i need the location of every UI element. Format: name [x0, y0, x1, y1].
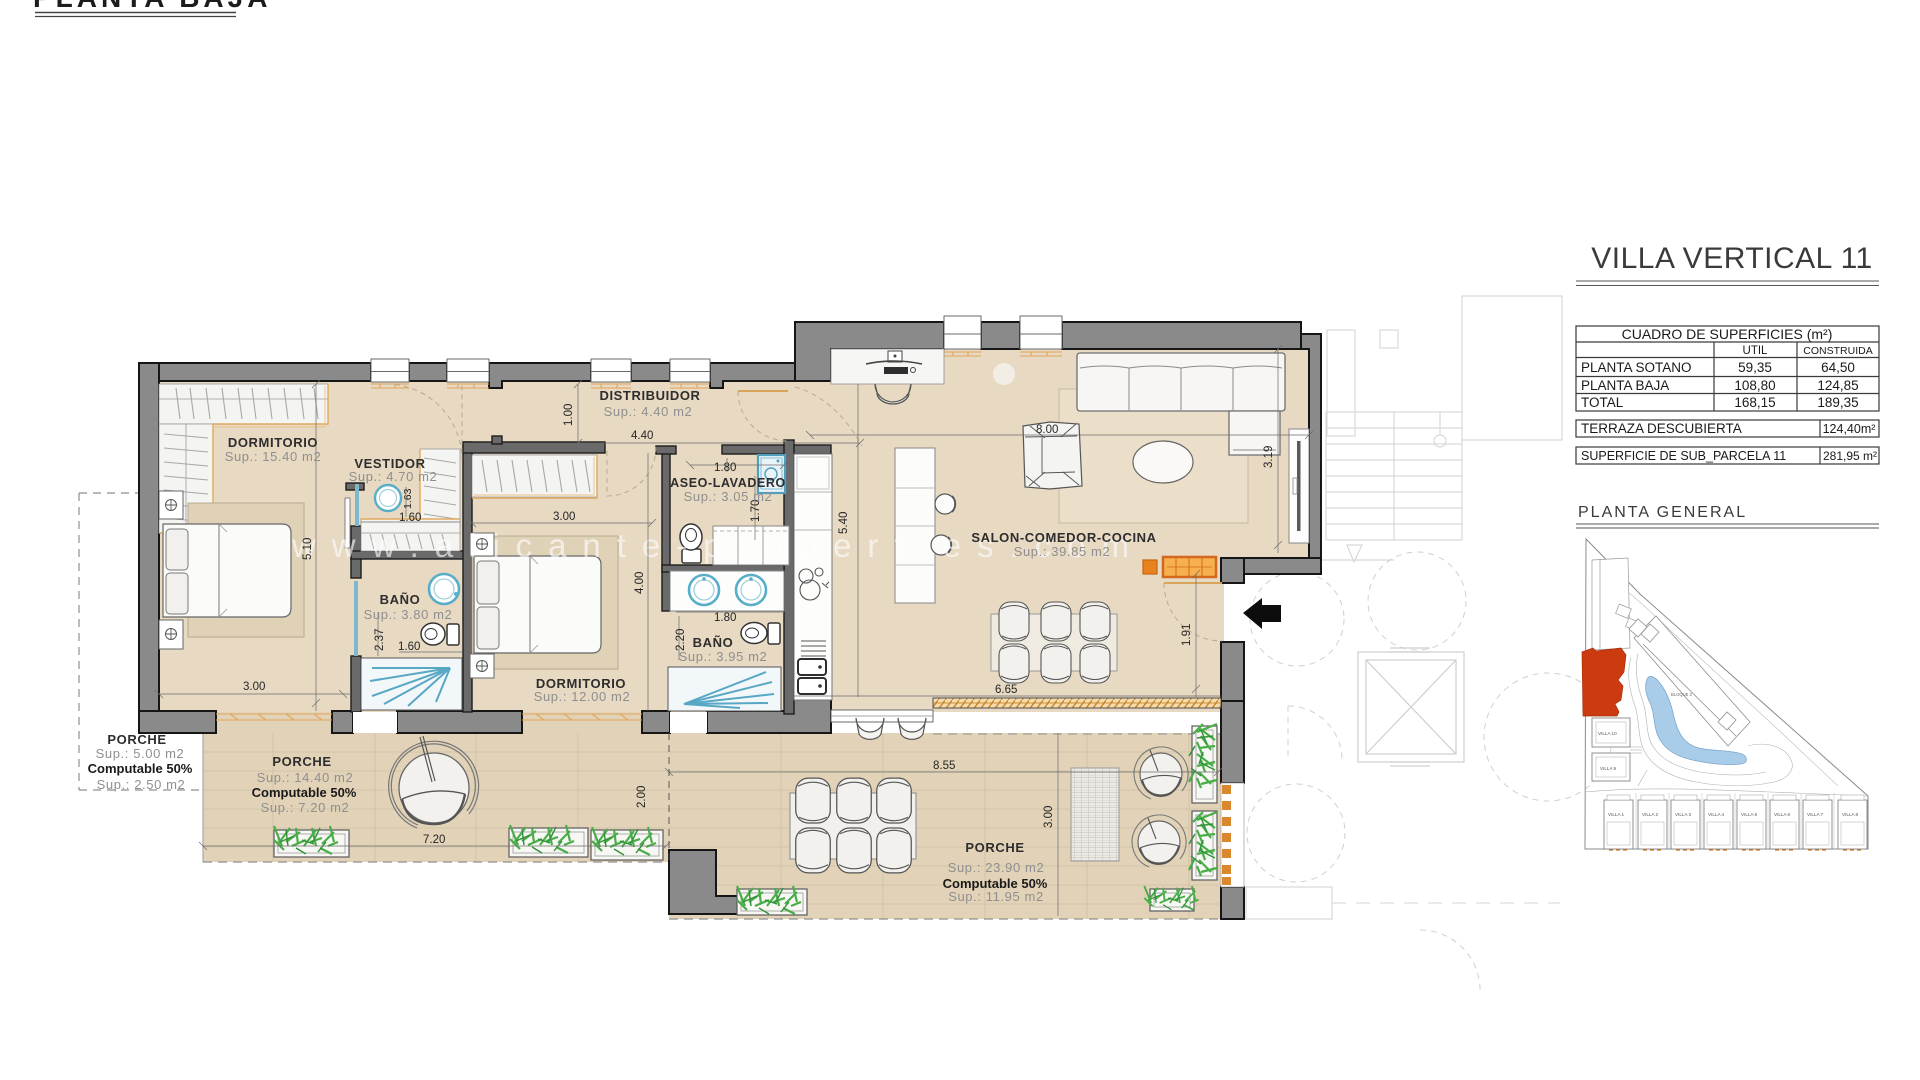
svg-text:VILLA 7: VILLA 7	[1807, 812, 1824, 817]
svg-text:108,80: 108,80	[1734, 378, 1775, 393]
svg-text:1.60: 1.60	[399, 512, 421, 524]
svg-text:PLANTA BAJA: PLANTA BAJA	[33, 0, 271, 13]
svg-text:1.63: 1.63	[402, 488, 414, 509]
svg-text:PLANTA BAJA: PLANTA BAJA	[1581, 378, 1669, 393]
svg-text:Sup.: 23.90 m2: Sup.: 23.90 m2	[948, 860, 1045, 875]
svg-text:CUADRO DE SUPERFICIES (m²): CUADRO DE SUPERFICIES (m²)	[1622, 326, 1833, 342]
svg-text:DISTRIBUIDOR: DISTRIBUIDOR	[599, 388, 700, 403]
svg-text:PORCHE: PORCHE	[107, 732, 166, 747]
svg-text:BAÑO: BAÑO	[380, 592, 421, 607]
svg-text:189,35: 189,35	[1817, 395, 1858, 410]
svg-text:2.00: 2.00	[636, 786, 648, 808]
svg-text:64,50: 64,50	[1821, 360, 1855, 375]
svg-text:TERRAZA DESCUBIERTA: TERRAZA DESCUBIERTA	[1581, 421, 1742, 436]
svg-text:8.55: 8.55	[933, 760, 955, 772]
svg-text:PLANTA SOTANO: PLANTA SOTANO	[1581, 360, 1692, 375]
svg-text:124,85: 124,85	[1817, 378, 1858, 393]
svg-text:VILLA 6: VILLA 6	[1774, 812, 1791, 817]
svg-text:SALON-COMEDOR-COCINA: SALON-COMEDOR-COCINA	[971, 530, 1156, 545]
svg-text:VILLA 3: VILLA 3	[1675, 812, 1692, 817]
svg-text:2.37: 2.37	[374, 629, 386, 651]
svg-text:VILLA VERTICAL 11: VILLA VERTICAL 11	[1591, 242, 1872, 275]
svg-text:VILLA 1: VILLA 1	[1608, 812, 1625, 817]
svg-text:VILLA 4: VILLA 4	[1708, 812, 1725, 817]
svg-text:BLOQUE 2: BLOQUE 2	[1671, 692, 1693, 697]
svg-text:Sup.: 3.80 m2: Sup.: 3.80 m2	[364, 607, 453, 622]
svg-text:1.80: 1.80	[714, 462, 736, 474]
svg-text:3.19: 3.19	[1263, 446, 1275, 468]
svg-text:Computable 50%: Computable 50%	[88, 761, 193, 776]
svg-text:VILLA 2: VILLA 2	[1642, 812, 1659, 817]
svg-text:3.00: 3.00	[243, 681, 265, 693]
svg-text:UTIL: UTIL	[1743, 345, 1769, 357]
svg-text:Sup.: 4.70 m2: Sup.: 4.70 m2	[349, 469, 438, 484]
svg-text:DORMITORIO: DORMITORIO	[228, 435, 318, 450]
svg-text:PLANTA GENERAL: PLANTA GENERAL	[1578, 504, 1747, 521]
svg-text:Sup.: 11.95 m2: Sup.: 11.95 m2	[948, 889, 1044, 904]
svg-text:BAÑO: BAÑO	[693, 635, 734, 650]
svg-text:PORCHE: PORCHE	[272, 754, 331, 769]
svg-text:Sup.: 12.00 m2: Sup.: 12.00 m2	[534, 689, 631, 704]
svg-text:VILLA 8: VILLA 8	[1842, 812, 1859, 817]
svg-text:Sup.: 15.40 m2: Sup.: 15.40 m2	[225, 449, 322, 464]
svg-text:168,15: 168,15	[1734, 395, 1775, 410]
svg-text:TOTAL: TOTAL	[1581, 395, 1624, 410]
svg-text:Sup.: 3.05 m2: Sup.: 3.05 m2	[684, 489, 773, 504]
svg-text:4.40: 4.40	[631, 430, 653, 442]
svg-text:Sup.: 4.40 m2: Sup.: 4.40 m2	[604, 404, 693, 419]
svg-text:6.65: 6.65	[995, 684, 1017, 696]
svg-text:Sup.: 39.85 m2: Sup.: 39.85 m2	[1014, 544, 1111, 559]
svg-text:Sup.: 5.00 m2: Sup.: 5.00 m2	[96, 746, 185, 761]
svg-text:VILLA 10: VILLA 10	[1598, 731, 1617, 736]
svg-text:1.60: 1.60	[398, 641, 420, 653]
svg-text:1.00: 1.00	[563, 404, 575, 426]
svg-text:1.91: 1.91	[1181, 624, 1193, 646]
svg-text:5.10: 5.10	[302, 538, 314, 560]
svg-text:Sup.: 2.50 m2: Sup.: 2.50 m2	[97, 777, 186, 792]
svg-text:3.00: 3.00	[553, 511, 575, 523]
svg-text:Sup.: 3.95 m2: Sup.: 3.95 m2	[679, 649, 768, 664]
svg-text:VILLA 5: VILLA 5	[1741, 812, 1758, 817]
svg-text:4.00: 4.00	[634, 572, 646, 594]
svg-text:Sup.: 14.40 m2: Sup.: 14.40 m2	[257, 770, 354, 785]
svg-text:SUPERFICIE DE SUB_PARCELA 11: SUPERFICIE DE SUB_PARCELA 11	[1581, 449, 1786, 463]
svg-text:Sup.: 7.20 m2: Sup.: 7.20 m2	[261, 800, 350, 815]
svg-text:PORCHE: PORCHE	[965, 840, 1024, 855]
svg-text:5.40: 5.40	[838, 512, 850, 534]
svg-text:CONSTRUIDA: CONSTRUIDA	[1803, 345, 1872, 357]
svg-text:Computable 50%: Computable 50%	[252, 785, 357, 800]
svg-text:1.80: 1.80	[714, 612, 736, 624]
svg-text:VILLA 9: VILLA 9	[1600, 766, 1617, 771]
svg-text:124,40m²: 124,40m²	[1823, 422, 1876, 436]
svg-text:ASEO-LAVADERO: ASEO-LAVADERO	[670, 476, 786, 490]
svg-text:7.20: 7.20	[423, 834, 445, 846]
svg-text:2.20: 2.20	[675, 629, 687, 651]
svg-text:281,95 m²: 281,95 m²	[1823, 449, 1877, 463]
svg-text:59,35: 59,35	[1738, 360, 1772, 375]
svg-text:8.00: 8.00	[1036, 424, 1058, 436]
svg-text:3.00: 3.00	[1043, 806, 1055, 828]
